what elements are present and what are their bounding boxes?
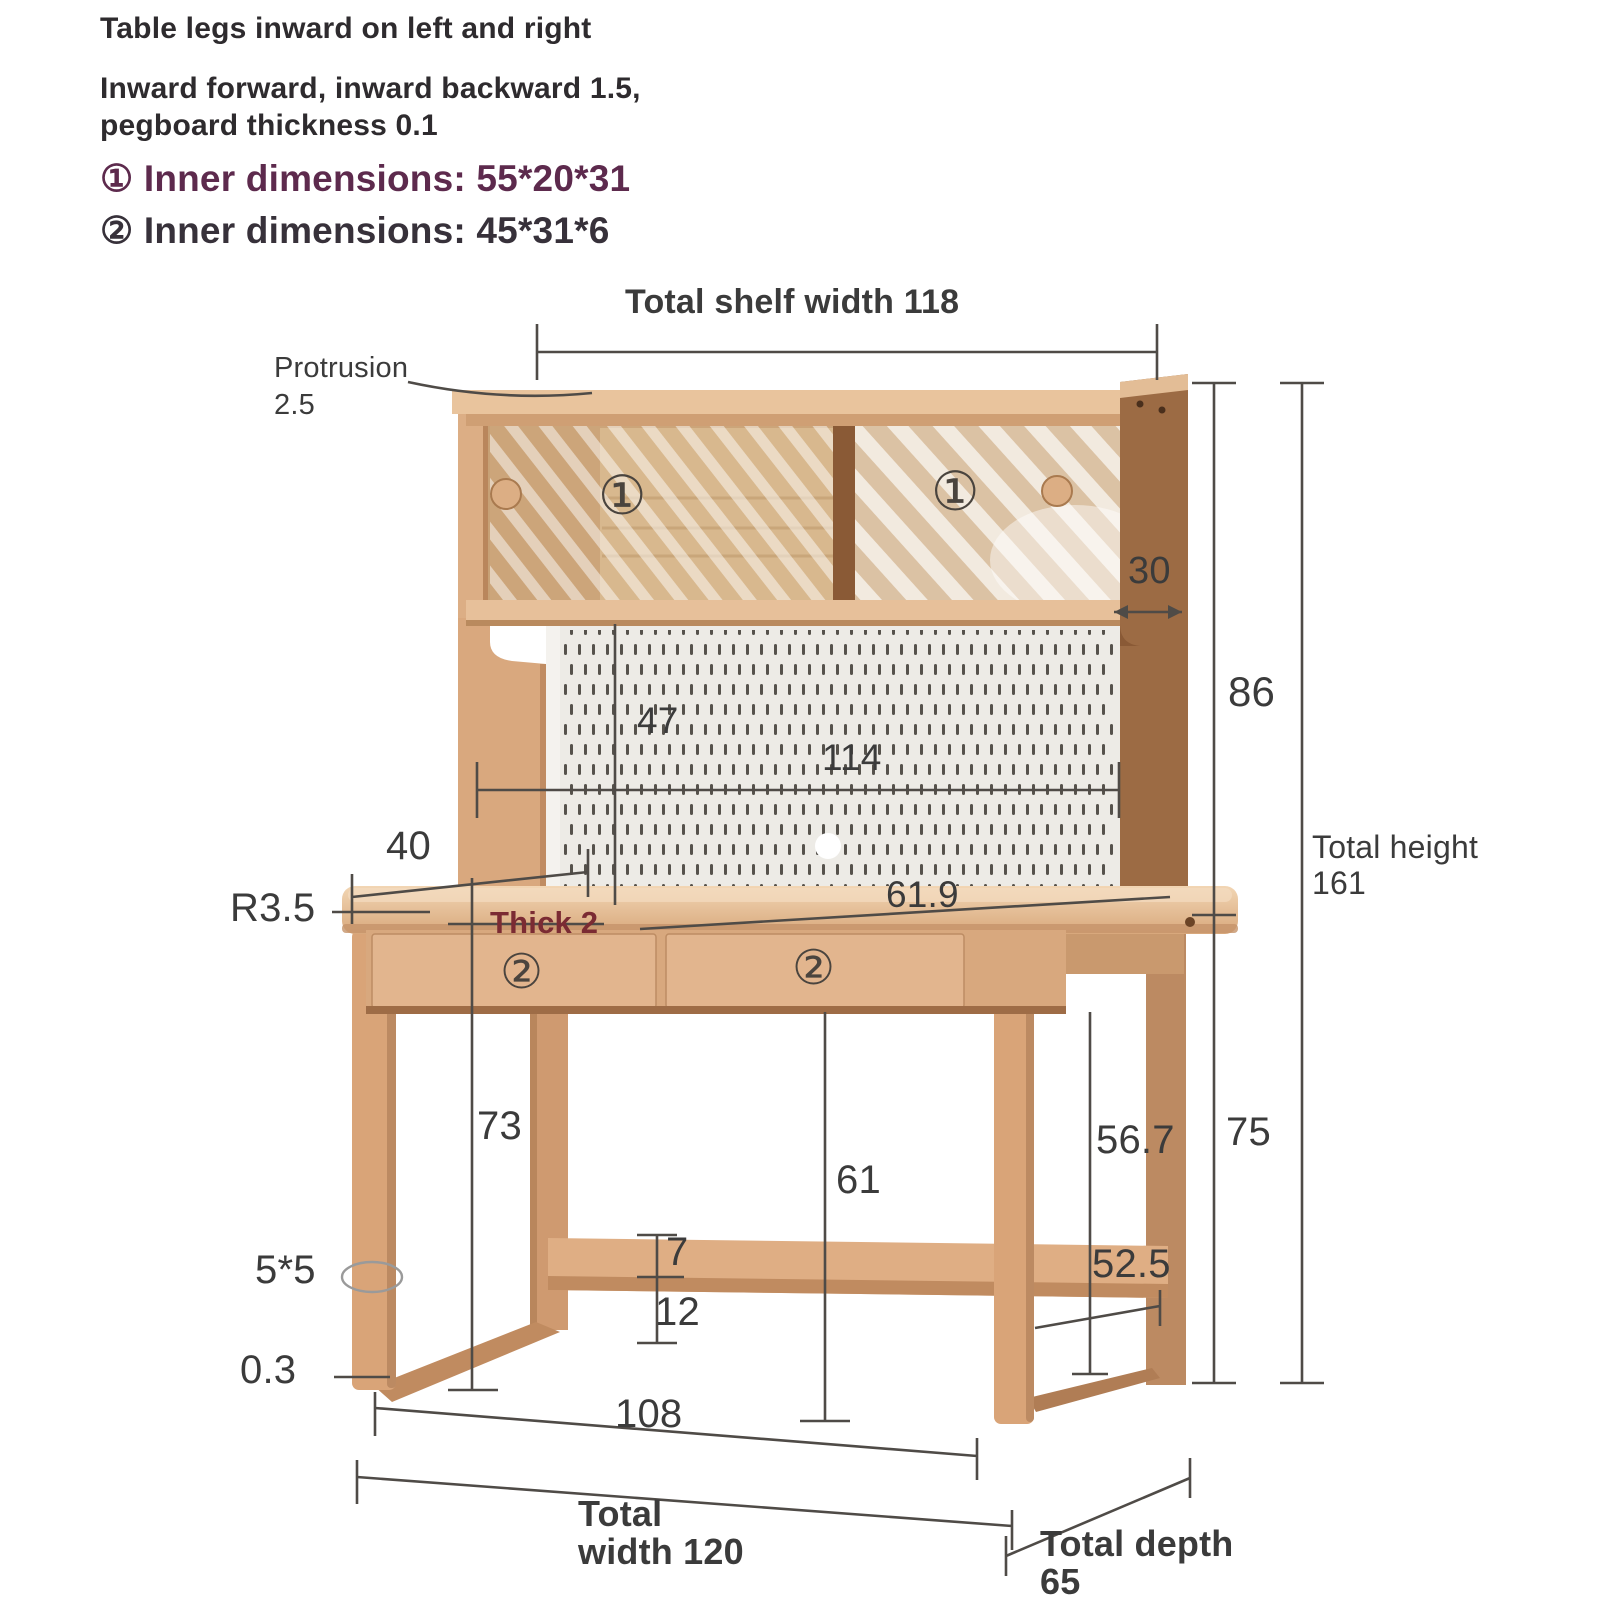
- dimension-diagram-page: Table legs inward on left and right Inwa…: [0, 0, 1600, 1600]
- note-inner-dim-1: ① Inner dimensions: 55*20*31: [100, 158, 630, 199]
- label-leg-73: 73: [477, 1104, 522, 1149]
- label-total-height: Total height: [1312, 830, 1478, 866]
- label-total-depth: Total depth: [1040, 1524, 1234, 1564]
- hutch-right-panel: [1120, 374, 1188, 905]
- label-height-86: 86: [1228, 668, 1275, 715]
- label-depth-40: 40: [386, 824, 431, 869]
- door-knob-right: [1042, 476, 1072, 506]
- label-protrusion-val: 2.5: [274, 389, 315, 421]
- glass-door-right: [855, 426, 1160, 615]
- marker-shelf-right: ①: [931, 462, 980, 522]
- label-total-width: Total: [578, 1494, 662, 1534]
- note-inward-line1: Inward forward, inward backward 1.5,: [100, 72, 641, 106]
- label-pegboard-114: 114: [822, 737, 882, 778]
- label-radius-r35: R3.5: [230, 886, 315, 931]
- label-inner-width-108: 108: [615, 1392, 682, 1437]
- label-total-depth-val: 65: [1040, 1562, 1080, 1600]
- label-depth-619: 61.9: [886, 874, 959, 915]
- label-total-shelf-width: Total shelf width 118: [625, 283, 959, 321]
- label-foot-03: 0.3: [240, 1348, 296, 1393]
- label-height-567: 56.7: [1096, 1118, 1175, 1163]
- marker-shelf-left: ①: [598, 466, 647, 526]
- note-inward-line2: pegboard thickness 0.1: [100, 109, 438, 143]
- marker-drawer-right: ②: [792, 942, 835, 996]
- label-thick-2: Thick 2: [490, 906, 598, 941]
- label-total-width-val: width 120: [578, 1532, 744, 1572]
- door-knob-left: [491, 479, 521, 509]
- label-stretcher-7: 7: [666, 1230, 688, 1275]
- marker-drawer-left: ②: [500, 946, 543, 1000]
- label-gap-12: 12: [655, 1290, 700, 1335]
- note-table-legs: Table legs inward on left and right: [100, 12, 591, 46]
- label-total-height-val: 161: [1312, 866, 1366, 902]
- glass-door-left: [490, 426, 833, 602]
- label-rail-525: 52.5: [1092, 1242, 1171, 1287]
- label-clearance-47: 47: [637, 700, 679, 741]
- label-desk-height-75: 75: [1226, 1110, 1271, 1155]
- label-leg-section-5x5: 5*5: [255, 1248, 316, 1293]
- label-height-61: 61: [836, 1158, 881, 1203]
- note-inner-dim-2: ② Inner dimensions: 45*31*6: [100, 210, 609, 251]
- label-depth-30: 30: [1128, 550, 1171, 593]
- label-protrusion: Protrusion: [274, 352, 408, 384]
